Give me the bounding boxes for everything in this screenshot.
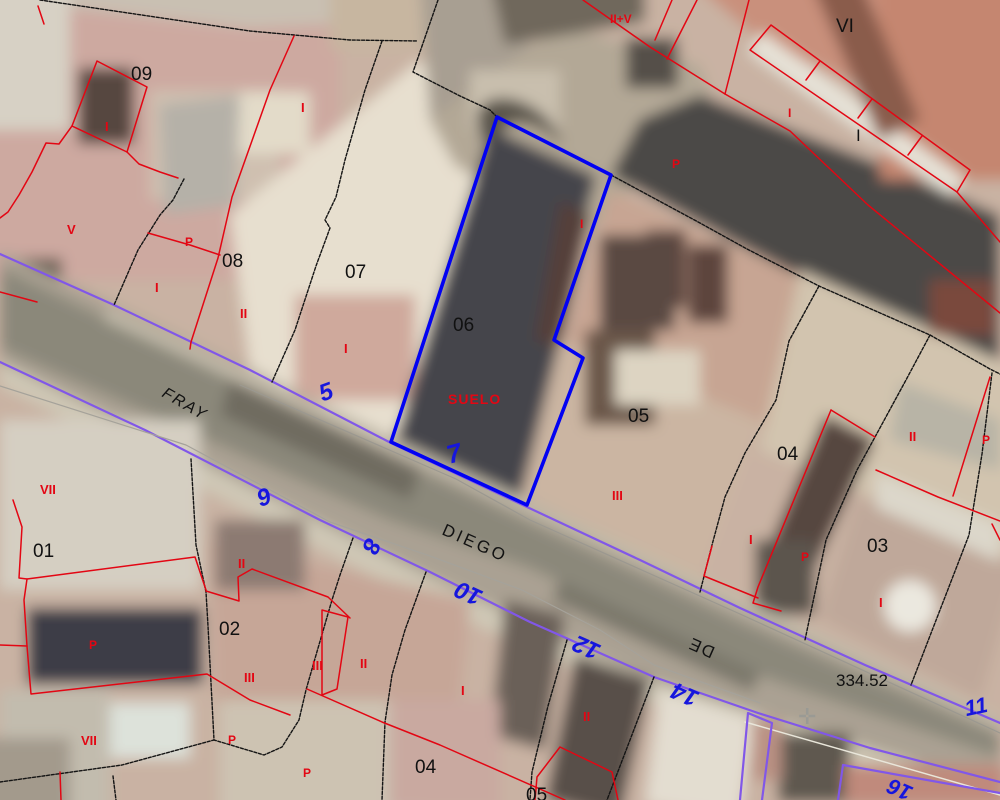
- svg-text:III: III: [612, 488, 623, 503]
- svg-text:II: II: [238, 556, 245, 571]
- svg-text:I: I: [879, 595, 883, 610]
- svg-text:VI: VI: [836, 16, 854, 37]
- svg-text:06: 06: [453, 315, 474, 336]
- svg-text:I: I: [749, 532, 753, 547]
- svg-text:VII: VII: [40, 482, 56, 497]
- svg-text:I: I: [105, 119, 109, 134]
- svg-text:I: I: [155, 280, 159, 295]
- svg-text:09: 09: [131, 64, 152, 85]
- svg-text:II: II: [240, 306, 247, 321]
- svg-text:II: II: [360, 656, 367, 671]
- svg-text:04: 04: [777, 444, 799, 465]
- svg-text:V: V: [67, 222, 76, 237]
- svg-text:I: I: [788, 106, 791, 120]
- svg-text:II+V: II+V: [610, 12, 632, 26]
- svg-text:P: P: [303, 766, 311, 780]
- svg-text:I: I: [344, 341, 348, 356]
- svg-text:I: I: [856, 126, 861, 145]
- svg-text:P: P: [672, 157, 680, 171]
- svg-text:I: I: [461, 683, 465, 698]
- svg-text:I: I: [580, 217, 583, 231]
- svg-text:334.52: 334.52: [836, 671, 888, 690]
- svg-text:VII: VII: [81, 733, 97, 748]
- svg-text:04: 04: [415, 757, 437, 778]
- svg-text:01: 01: [33, 541, 54, 562]
- svg-text:05: 05: [628, 406, 649, 427]
- svg-text:08: 08: [222, 251, 243, 272]
- svg-text:P: P: [982, 433, 990, 447]
- svg-text:III: III: [244, 670, 255, 685]
- svg-text:✛: ✛: [798, 704, 816, 729]
- svg-text:II: II: [583, 709, 590, 724]
- svg-text:P: P: [89, 638, 97, 652]
- svg-text:P: P: [801, 550, 809, 564]
- svg-text:I: I: [301, 100, 305, 115]
- svg-text:05: 05: [526, 785, 547, 800]
- svg-text:SUELO: SUELO: [448, 391, 501, 407]
- svg-text:III: III: [312, 658, 323, 673]
- svg-text:P: P: [228, 733, 236, 747]
- svg-text:03: 03: [867, 536, 888, 557]
- svg-text:02: 02: [219, 619, 240, 640]
- svg-text:P: P: [185, 235, 193, 249]
- svg-text:II: II: [909, 429, 916, 444]
- svg-text:07: 07: [345, 262, 366, 283]
